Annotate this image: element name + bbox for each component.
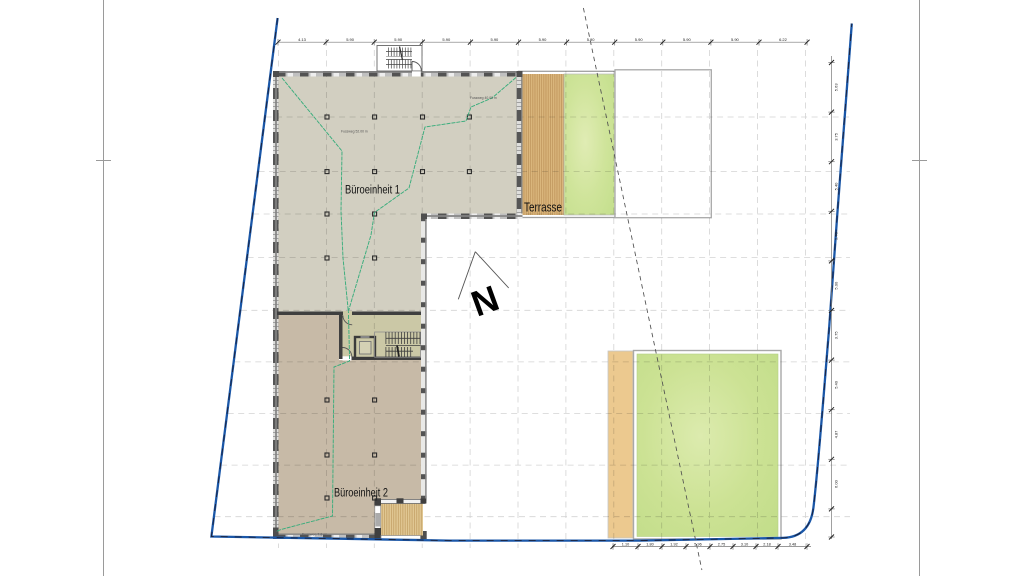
svg-text:5.90: 5.90 <box>442 37 451 42</box>
svg-text:Fussweg 40.00 m: Fussweg 40.00 m <box>470 96 497 100</box>
svg-text:6.22: 6.22 <box>779 37 788 42</box>
svg-text:Büroeinheit 2: Büroeinheit 2 <box>334 488 388 500</box>
svg-text:1.80: 1.80 <box>646 542 653 546</box>
svg-text:3.75: 3.75 <box>834 331 839 340</box>
svg-text:5.90: 5.90 <box>587 37 596 42</box>
svg-text:3.75: 3.75 <box>834 132 839 141</box>
svg-text:5.90: 5.90 <box>346 37 355 42</box>
svg-text:5.40: 5.40 <box>834 231 839 240</box>
svg-text:Terrasse: Terrasse <box>524 201 562 215</box>
svg-text:5.90: 5.90 <box>394 37 403 42</box>
svg-text:5.40: 5.40 <box>834 380 839 389</box>
svg-text:5.63: 5.63 <box>834 83 839 92</box>
svg-text:5.40: 5.40 <box>834 182 839 191</box>
svg-text:Fussweg 7.8 m: Fussweg 7.8 m <box>302 533 326 537</box>
svg-text:1.10: 1.10 <box>622 542 629 546</box>
svg-text:1.92: 1.92 <box>670 542 677 546</box>
svg-text:5.90: 5.90 <box>539 37 548 42</box>
svg-text:5.96: 5.96 <box>694 542 701 546</box>
svg-text:5.90: 5.90 <box>731 37 740 42</box>
svg-text:Büroeinheit 1: Büroeinheit 1 <box>345 185 400 197</box>
svg-text:3.10: 3.10 <box>741 542 748 546</box>
svg-text:4.87: 4.87 <box>834 430 839 439</box>
svg-text:2.75: 2.75 <box>718 542 725 546</box>
svg-text:6.00: 6.00 <box>834 479 839 488</box>
svg-text:5.90: 5.90 <box>491 37 500 42</box>
svg-text:2.18: 2.18 <box>763 542 770 546</box>
svg-text:4.13: 4.13 <box>298 37 307 42</box>
svg-text:3.48: 3.48 <box>789 542 796 546</box>
svg-text:5.90: 5.90 <box>683 37 692 42</box>
svg-text:5.90: 5.90 <box>635 37 644 42</box>
svg-text:5.00: 5.00 <box>834 281 839 290</box>
svg-text:Fussweg 52.00 m: Fussweg 52.00 m <box>341 130 368 134</box>
